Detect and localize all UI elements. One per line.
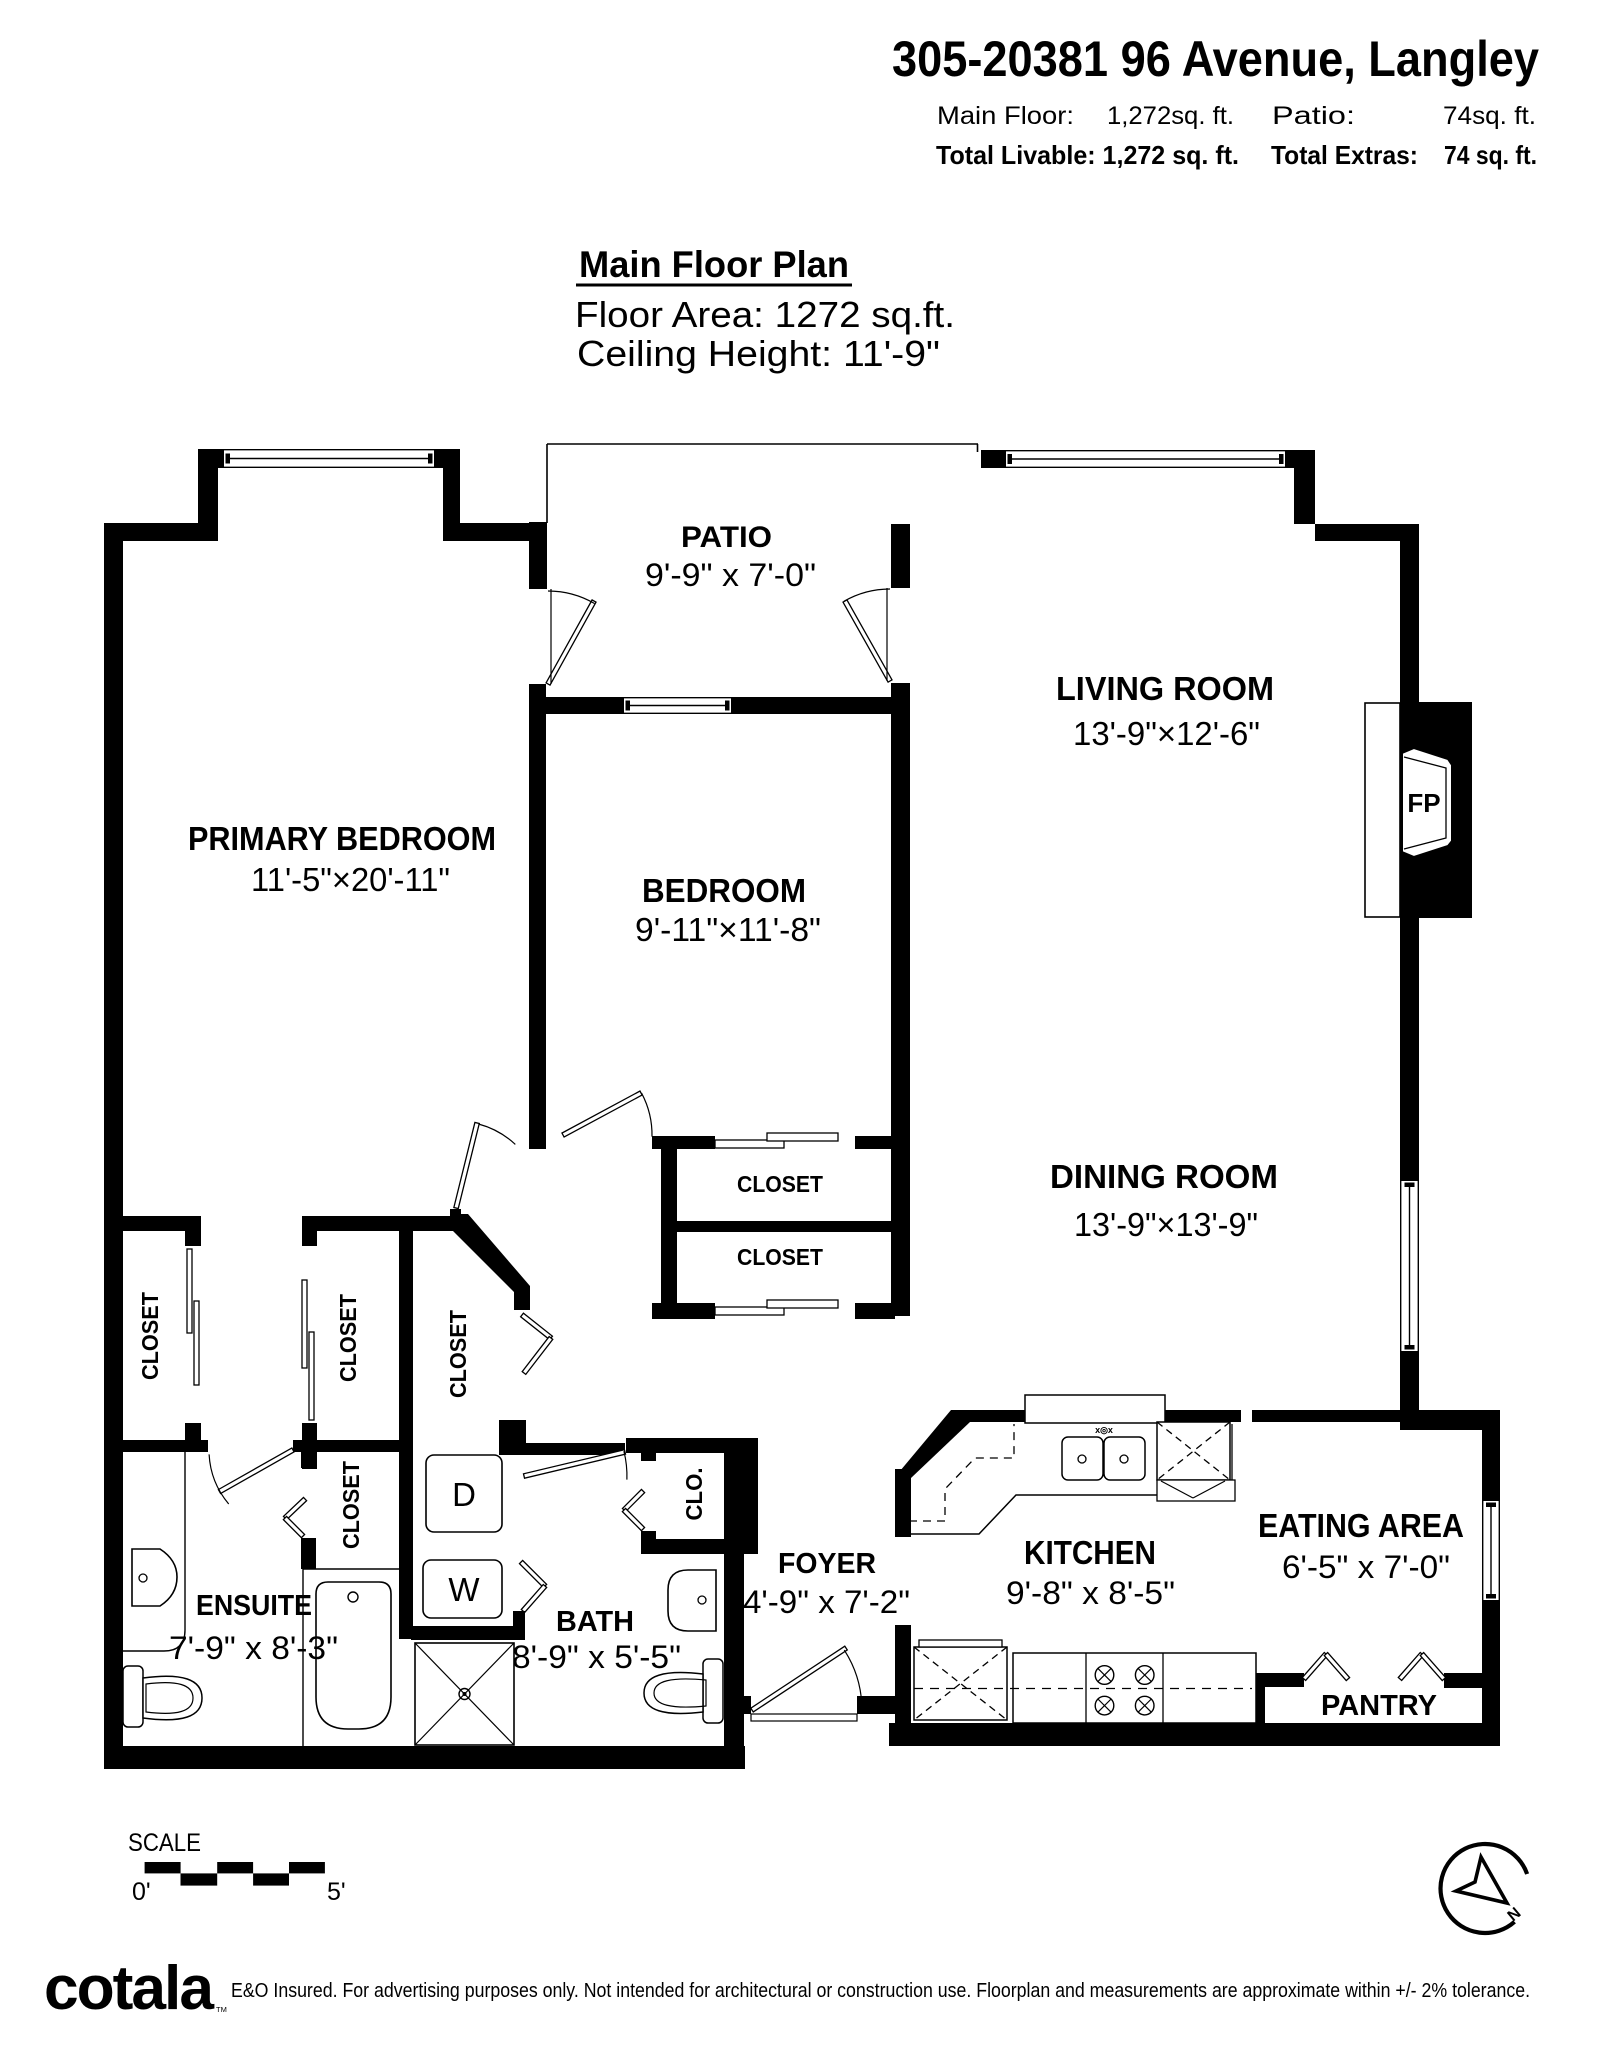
svg-text:13'-9"×13'-9": 13'-9"×13'-9" (1074, 1206, 1258, 1243)
svg-text:FOYER: FOYER (778, 1548, 876, 1580)
svg-text:BEDROOM: BEDROOM (642, 872, 806, 909)
svg-text:CLOSET: CLOSET (737, 1171, 823, 1197)
svg-text:Main Floor:: Main Floor: (937, 102, 1074, 130)
svg-text:LIVING ROOM: LIVING ROOM (1056, 670, 1274, 707)
svg-text:TM: TM (216, 2005, 227, 2014)
svg-text:6'-5" x 7'-0": 6'-5" x 7'-0" (1282, 1549, 1450, 1585)
svg-text:E&O Insured. For advertising p: E&O Insured. For advertising purposes on… (231, 1980, 1530, 2002)
svg-text:PANTRY: PANTRY (1321, 1690, 1437, 1722)
svg-text:BATH: BATH (556, 1606, 634, 1638)
svg-text:Floor Area: 1272 sq.ft.: Floor Area: 1272 sq.ft. (575, 294, 955, 335)
svg-text:9'-11"×11'-8": 9'-11"×11'-8" (635, 911, 821, 948)
svg-text:Total Extras:: Total Extras: (1271, 140, 1418, 170)
svg-text:DINING ROOM: DINING ROOM (1050, 1158, 1278, 1195)
svg-text:11'-5"×20'-11": 11'-5"×20'-11" (251, 861, 450, 898)
svg-text:13'-9"×12'-6": 13'-9"×12'-6" (1073, 715, 1260, 752)
svg-text:9'-8" x 8'-5": 9'-8" x 8'-5" (1006, 1575, 1175, 1611)
svg-text:CLOSET: CLOSET (335, 1294, 361, 1382)
svg-text:0': 0' (132, 1878, 151, 1906)
svg-text:Main Floor Plan: Main Floor Plan (579, 244, 849, 285)
svg-text:CLOSET: CLOSET (445, 1310, 471, 1398)
svg-text:SCALE: SCALE (128, 1829, 201, 1857)
svg-text:x◎x: x◎x (1095, 1425, 1113, 1435)
svg-text:cotala: cotala (44, 1954, 215, 2023)
svg-text:ENSUITE: ENSUITE (196, 1590, 312, 1622)
svg-text:1,272sq. ft.: 1,272sq. ft. (1107, 102, 1234, 130)
svg-text:305-20381 96 Avenue, Langley: 305-20381 96 Avenue, Langley (892, 31, 1539, 87)
svg-text:5': 5' (327, 1878, 346, 1906)
svg-text:KITCHEN: KITCHEN (1024, 1534, 1156, 1571)
svg-text:D: D (452, 1476, 476, 1513)
svg-text:FP: FP (1407, 788, 1440, 818)
svg-text:CLOSET: CLOSET (737, 1244, 823, 1270)
svg-text:CLOSET: CLOSET (137, 1292, 163, 1380)
svg-text:PRIMARY BEDROOM: PRIMARY BEDROOM (188, 820, 496, 857)
svg-text:Ceiling Height: 11'-9": Ceiling Height: 11'-9" (577, 333, 940, 374)
svg-text:7'-9" x 8'-3": 7'-9" x 8'-3" (169, 1630, 338, 1666)
svg-text:4'-9" x 7'-2": 4'-9" x 7'-2" (743, 1584, 910, 1620)
svg-text:CLOSET: CLOSET (338, 1461, 364, 1549)
svg-text:9'-9" x 7'-0": 9'-9" x 7'-0" (645, 557, 816, 593)
svg-text:PATIO: PATIO (681, 521, 772, 554)
svg-text:74sq. ft.: 74sq. ft. (1443, 102, 1536, 130)
svg-text:Patio:: Patio: (1272, 102, 1355, 130)
svg-text:74 sq. ft.: 74 sq. ft. (1444, 140, 1537, 170)
svg-text:W: W (448, 1571, 480, 1608)
svg-text:Total Livable: 1,272 sq. ft.: Total Livable: 1,272 sq. ft. (936, 140, 1239, 170)
svg-text:CLO.: CLO. (681, 1468, 707, 1521)
svg-text:8'-9" x 5'-5": 8'-9" x 5'-5" (512, 1639, 681, 1675)
svg-text:EATING AREA: EATING AREA (1258, 1507, 1464, 1544)
